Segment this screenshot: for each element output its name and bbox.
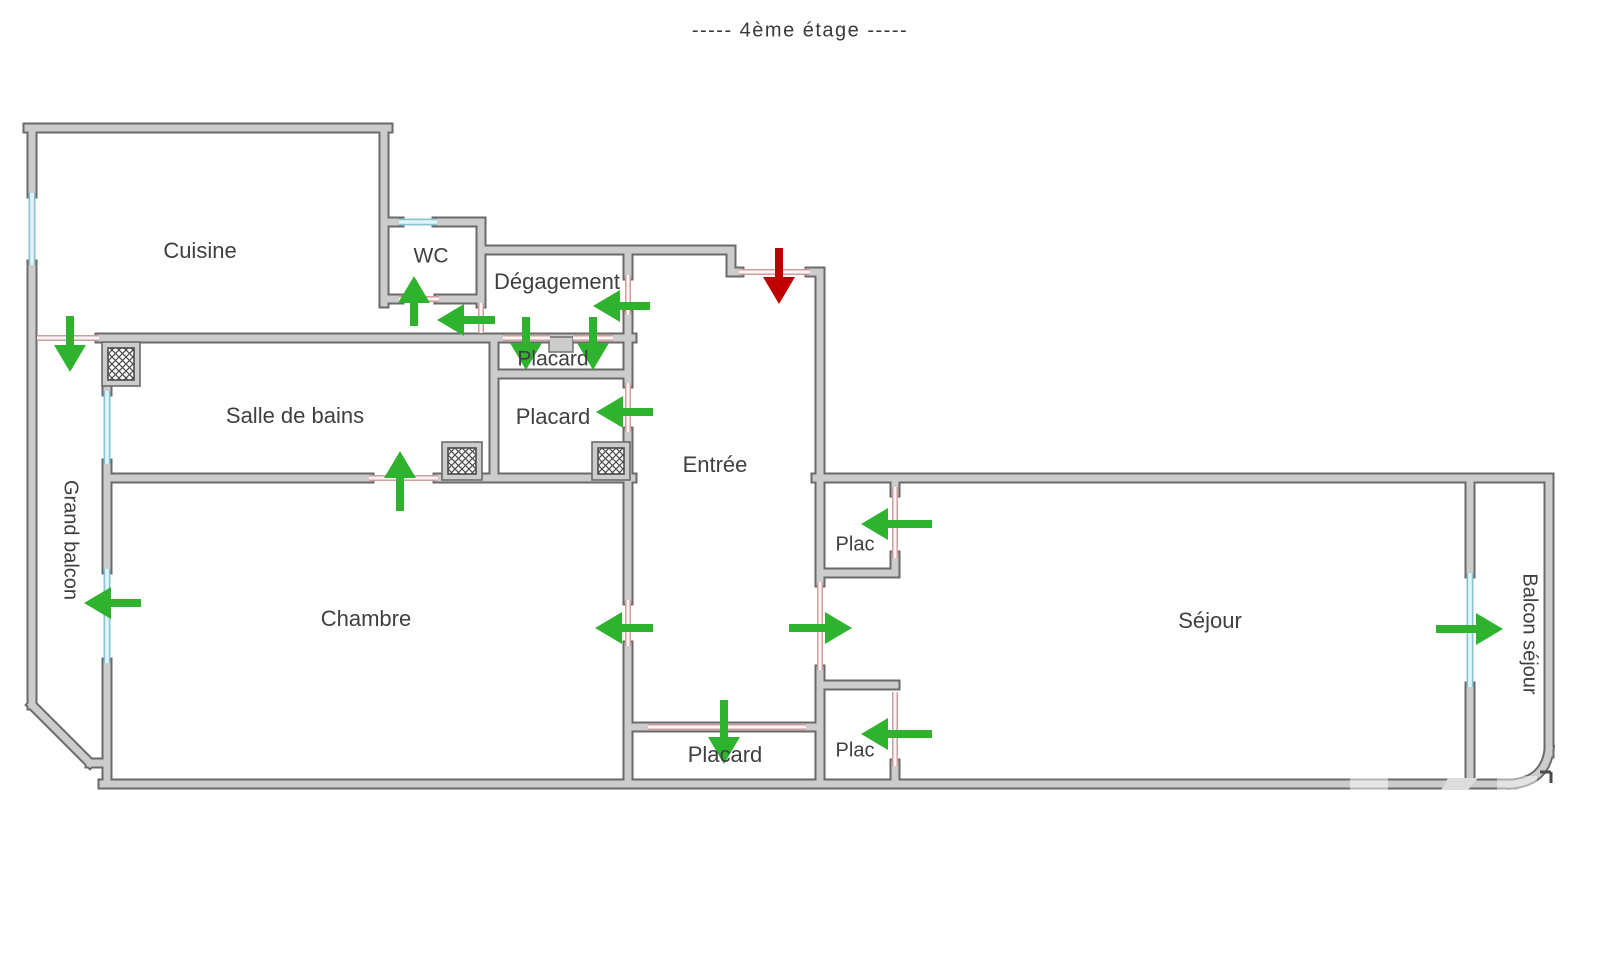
arrow-door-entree-chambre (595, 612, 653, 644)
label-chambre: Chambre (321, 606, 411, 631)
arrow-door-cuisine-degagement (437, 304, 495, 336)
label-placard-milieu: Placard (516, 404, 591, 429)
floor-title: ----- 4ème étage ----- (692, 19, 908, 41)
label-balcon-sejour: Balcon séjour (1519, 573, 1541, 695)
arrow-door-placard-milieu (596, 396, 653, 428)
windows-layer (32, 193, 1470, 687)
walls-outline-layer (28, 128, 1549, 784)
label-plac-haut: Plac (836, 533, 875, 555)
label-sejour: Séjour (1178, 608, 1242, 633)
label-degagement: Dégagement (494, 269, 620, 294)
label-cuisine: Cuisine (163, 238, 236, 263)
room-labels-layer: CuisineWCDégagementPlacardPlacardSalle d… (60, 238, 1541, 767)
label-salle-de-bains: Salle de bains (226, 403, 364, 428)
arrow-entry-door (763, 248, 795, 304)
label-entree: Entrée (683, 452, 748, 477)
floor-plan-page: CuisineWCDégagementPlacardPlacardSalle d… (0, 0, 1600, 971)
label-placard-bas: Placard (688, 742, 763, 767)
label-wc: WC (414, 245, 449, 268)
arrow-door-grand-balcon-cuisine (54, 316, 86, 372)
label-placard-haut: Placard (517, 348, 588, 371)
walls-fill-layer (28, 128, 1551, 784)
floor-plan: CuisineWCDégagementPlacardPlacardSalle d… (0, 0, 1600, 971)
column-hatched-1 (102, 342, 140, 386)
label-grand-balcon: Grand balcon (60, 480, 82, 600)
label-plac-bas: Plac (836, 739, 875, 761)
arrow-door-wc (398, 276, 430, 326)
door-arrows-layer (54, 248, 1503, 764)
column-hatched-3 (592, 442, 630, 480)
arrow-door-grand-balcon-chambre (84, 587, 141, 619)
doors-layer (37, 272, 895, 766)
column-hatched-2 (442, 442, 482, 480)
arrow-door-entree-degagement (593, 290, 650, 322)
